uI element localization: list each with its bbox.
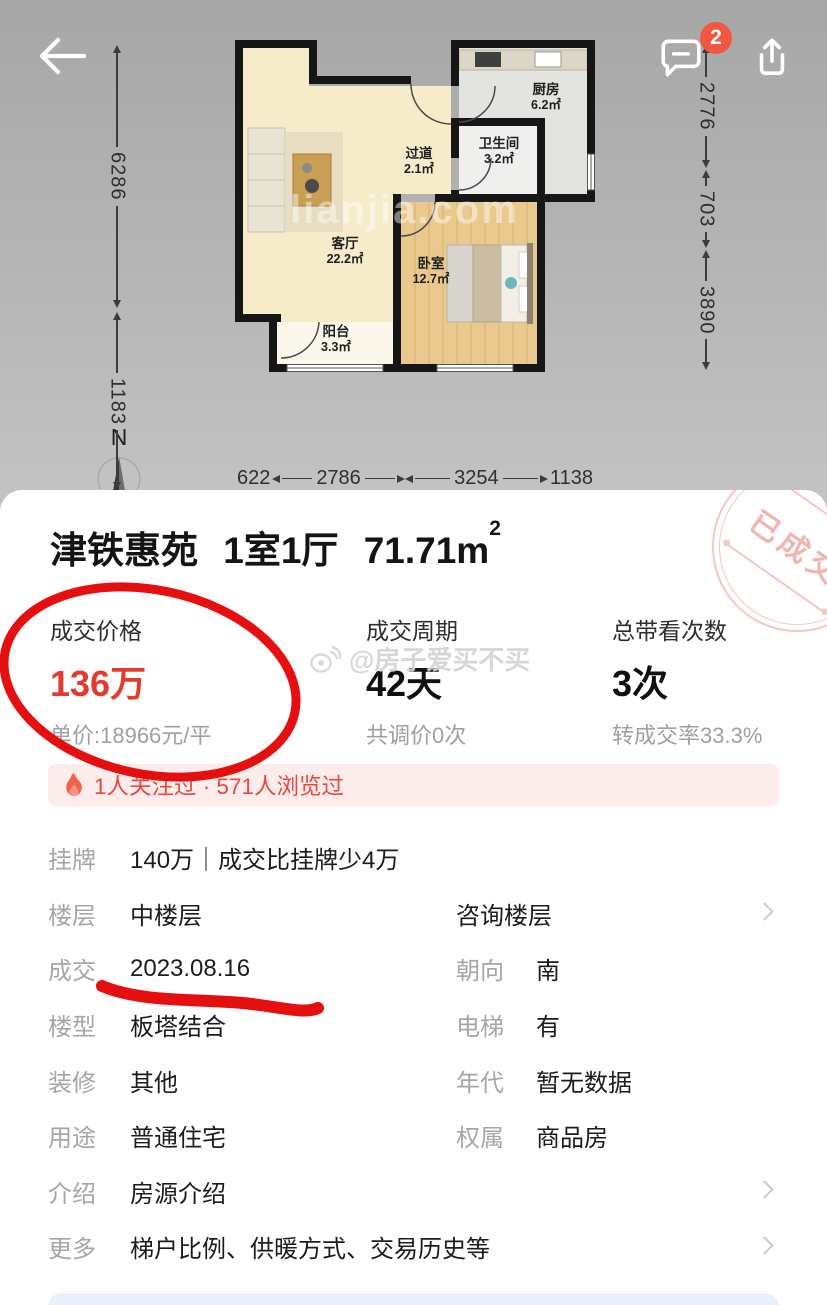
stat-showings: 总带看次数 3次 转成交率33.3% [612, 612, 762, 750]
room-label-corridor: 过道 2.1㎡ [391, 146, 447, 178]
row-listing-price: 挂牌 140万｜成交比挂牌 少4万 [48, 830, 779, 886]
listing-title: 津铁惠苑 1室1厅 71.71m2 [50, 520, 501, 574]
share-icon [748, 34, 796, 80]
chevron-right-icon[interactable] [755, 903, 773, 921]
row-usage: 用途 普通住宅 权属商品房 [48, 1108, 779, 1164]
layout-text: 1室1厅 [223, 530, 338, 571]
arrow-left-icon [36, 36, 88, 76]
chevron-right-icon[interactable] [755, 1181, 773, 1199]
stats-row: 成交价格 136万 单价:18966元/平 成交周期 42天 共调价0次 总带看… [0, 612, 827, 742]
room-label-living: 客厅 22.2㎡ [295, 236, 395, 268]
info-table: 挂牌 140万｜成交比挂牌 少4万 楼层 中楼层 咨询楼层 成交 2023.08… [48, 830, 779, 1275]
dimension-right-3: 3890 [695, 250, 717, 370]
comment-bubble-icon [658, 34, 704, 80]
share-button[interactable] [748, 34, 796, 85]
room-label-kitchen: 厨房 6.2㎡ [511, 82, 581, 114]
area-sup: 2 [489, 517, 501, 540]
deal-date-value: 2023.08.16 [130, 955, 250, 983]
notification-badge: 2 [700, 22, 732, 54]
row-decoration: 装修 其他 年代暂无数据 [48, 1052, 779, 1108]
community-name: 津铁惠苑 [50, 530, 198, 571]
back-button[interactable] [36, 36, 88, 81]
popularity-banner: 1人关注过 · 571人浏览过 [48, 764, 779, 806]
room-label-balcony: 阳台 3.3㎡ [305, 324, 367, 356]
dimension-left-1: 6286 [106, 45, 128, 308]
screen: 2 [0, 0, 827, 1305]
bottom-section-peek[interactable] [48, 1293, 779, 1305]
dimension-bottom-row: 622 2786 3254 1138 [235, 467, 595, 490]
floorplan-image[interactable]: lianjia.com 客厅 22.2㎡ 卧室 12.7㎡ 厨房 6.2㎡ 卫生… [235, 40, 595, 372]
comments-button[interactable] [658, 34, 704, 85]
row-intro[interactable]: 介绍 房源介绍 [48, 1164, 779, 1220]
ask-floor-link[interactable]: 咨询楼层 [456, 896, 552, 931]
room-label-bathroom: 卫生间 3.2㎡ [463, 136, 535, 168]
dimension-left-2: 1183 [106, 312, 128, 490]
popularity-text: 1人关注过 · 571人浏览过 [94, 769, 344, 801]
listing-card: 已成交 津铁惠苑 1室1厅 71.71m2 成交价格 136万 单价:18966… [0, 490, 827, 1305]
price-diff-text: 少4万 [338, 840, 399, 875]
dimension-right-2: 703 [695, 170, 717, 248]
row-more[interactable]: 更多 梯户比例、供暖方式、交易历史等 [48, 1219, 779, 1275]
stat-deal-cycle: 成交周期 42天 共调价0次 [366, 612, 466, 750]
room-label-bedroom: 卧室 12.7㎡ [393, 256, 469, 288]
row-floor: 楼层 中楼层 咨询楼层 [48, 886, 779, 942]
row-deal-date: 成交 2023.08.16 朝向南 [48, 941, 779, 997]
row-building-type: 楼型 板塔结合 电梯有 [48, 997, 779, 1053]
chevron-right-icon[interactable] [755, 1236, 773, 1254]
flame-icon [64, 772, 84, 798]
stat-deal-price: 成交价格 136万 单价:18966元/平 [50, 612, 211, 750]
deal-price-value: 136万 [50, 655, 146, 707]
area-text: 71.71m [364, 530, 490, 571]
